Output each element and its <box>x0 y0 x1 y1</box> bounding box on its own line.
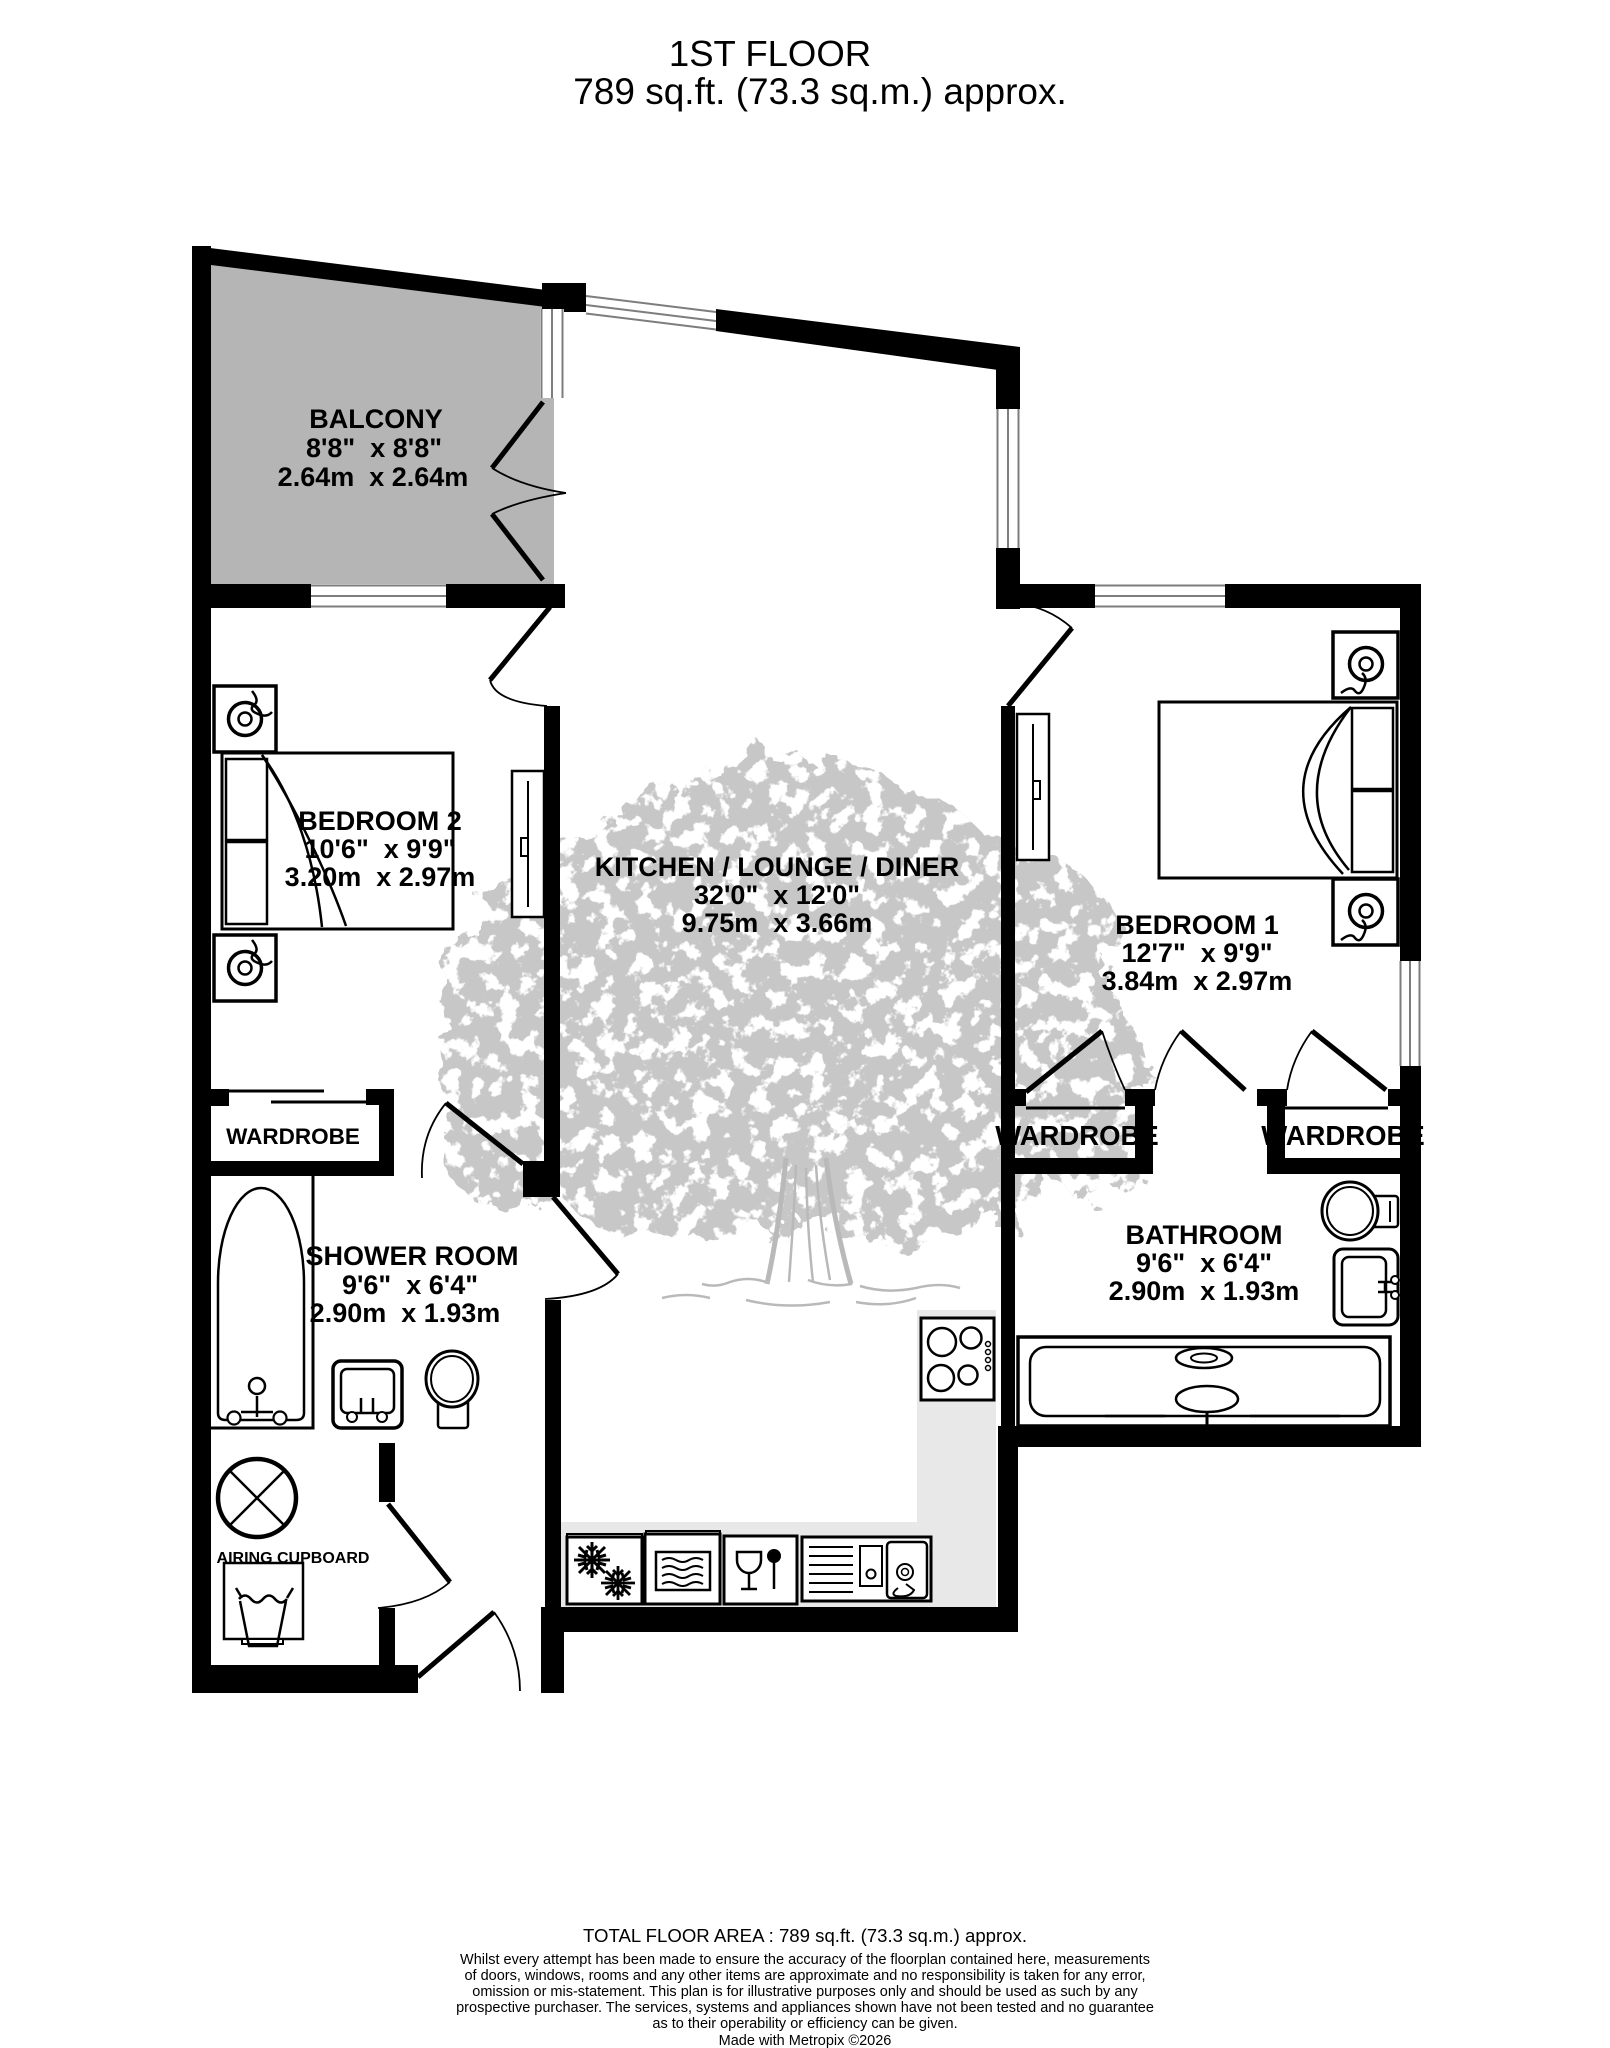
svg-text:9'6" x 6'4": 9'6" x 6'4" <box>1136 1248 1272 1278</box>
svg-text:3.20m x 2.97m: 3.20m x 2.97m <box>285 862 476 892</box>
svg-text:10'6" x 9'9": 10'6" x 9'9" <box>304 834 455 864</box>
svg-text:BATHROOM: BATHROOM <box>1126 1220 1283 1250</box>
svg-text:3.84m x 2.97m: 3.84m x 2.97m <box>1102 966 1293 996</box>
svg-text:WARDROBE: WARDROBE <box>226 1124 360 1149</box>
svg-text:prospective purchaser. The ser: prospective purchaser. The services, sys… <box>456 2000 1154 2016</box>
svg-text:Whilst every attempt has been: Whilst every attempt has been made to en… <box>460 1952 1150 1968</box>
svg-text:9'6" x 6'4": 9'6" x 6'4" <box>342 1270 478 1300</box>
svg-text:12'7" x 9'9": 12'7" x 9'9" <box>1121 938 1272 968</box>
svg-text:2.90m x 1.93m: 2.90m x 1.93m <box>1109 1276 1300 1306</box>
svg-text:AIRING CUPBOARD: AIRING CUPBOARD <box>217 1550 370 1567</box>
svg-text:TOTAL FLOOR AREA : 789 sq.ft.: TOTAL FLOOR AREA : 789 sq.ft. (73.3 sq.m… <box>583 1925 1027 1946</box>
svg-text:32'0" x 12'0": 32'0" x 12'0" <box>694 880 860 910</box>
svg-text:1ST FLOOR: 1ST FLOOR <box>669 33 871 74</box>
svg-text:KITCHEN / LOUNGE / DINER: KITCHEN / LOUNGE / DINER <box>595 852 960 882</box>
svg-text:WARDROBE: WARDROBE <box>995 1120 1158 1151</box>
svg-text:WARDROBE: WARDROBE <box>1261 1120 1424 1151</box>
svg-text:as to their operability or eff: as to their operability or efficiency ca… <box>652 2016 957 2032</box>
svg-text:of doors, windows, rooms and a: of doors, windows, rooms and any other i… <box>464 1968 1145 1984</box>
svg-text:8'8" x 8'8": 8'8" x 8'8" <box>306 433 442 463</box>
svg-text:789 sq.ft. (73.3 sq.m.) approx: 789 sq.ft. (73.3 sq.m.) approx. <box>573 71 1067 112</box>
svg-text:BEDROOM 2: BEDROOM 2 <box>298 806 462 836</box>
svg-text:2.64m x 2.64m: 2.64m x 2.64m <box>278 462 469 492</box>
svg-text:9.75m x 3.66m: 9.75m x 3.66m <box>682 908 873 938</box>
svg-text:BEDROOM 1: BEDROOM 1 <box>1115 910 1279 940</box>
svg-text:2.90m x 1.93m: 2.90m x 1.93m <box>310 1298 501 1328</box>
svg-text:omission or mis-statement. Thi: omission or mis-statement. This plan is … <box>472 1984 1138 2000</box>
svg-text:SHOWER ROOM: SHOWER ROOM <box>306 1241 519 1271</box>
svg-text:Made with Metropix ©2026: Made with Metropix ©2026 <box>719 2033 892 2048</box>
svg-text:BALCONY: BALCONY <box>309 404 443 434</box>
